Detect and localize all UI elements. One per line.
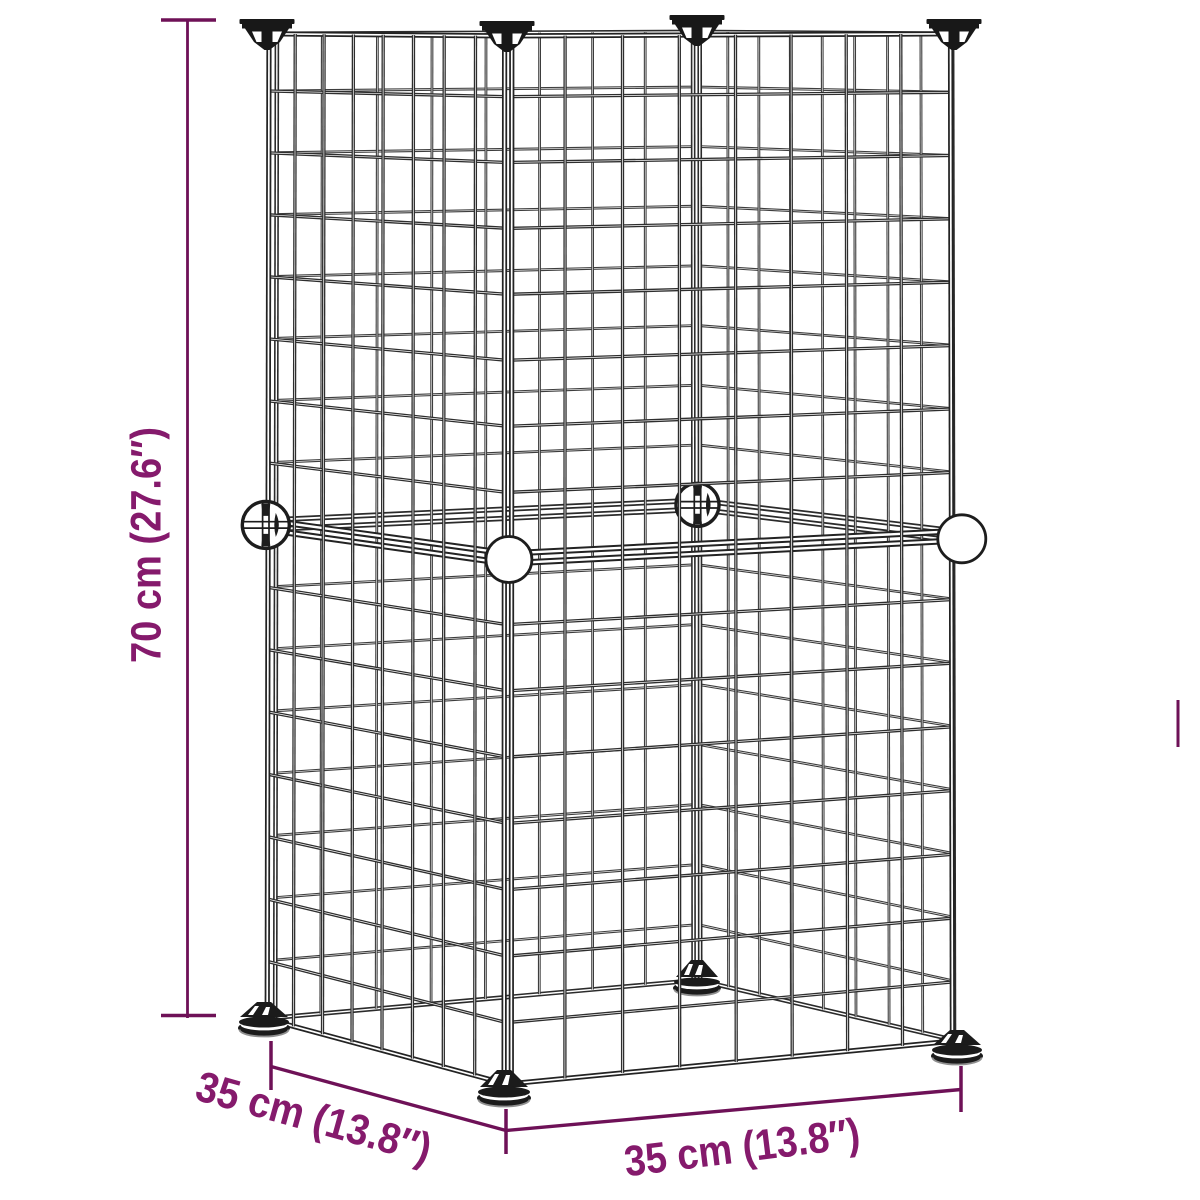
svg-text:70 cm (27.6″): 70 cm (27.6″) (123, 427, 171, 663)
